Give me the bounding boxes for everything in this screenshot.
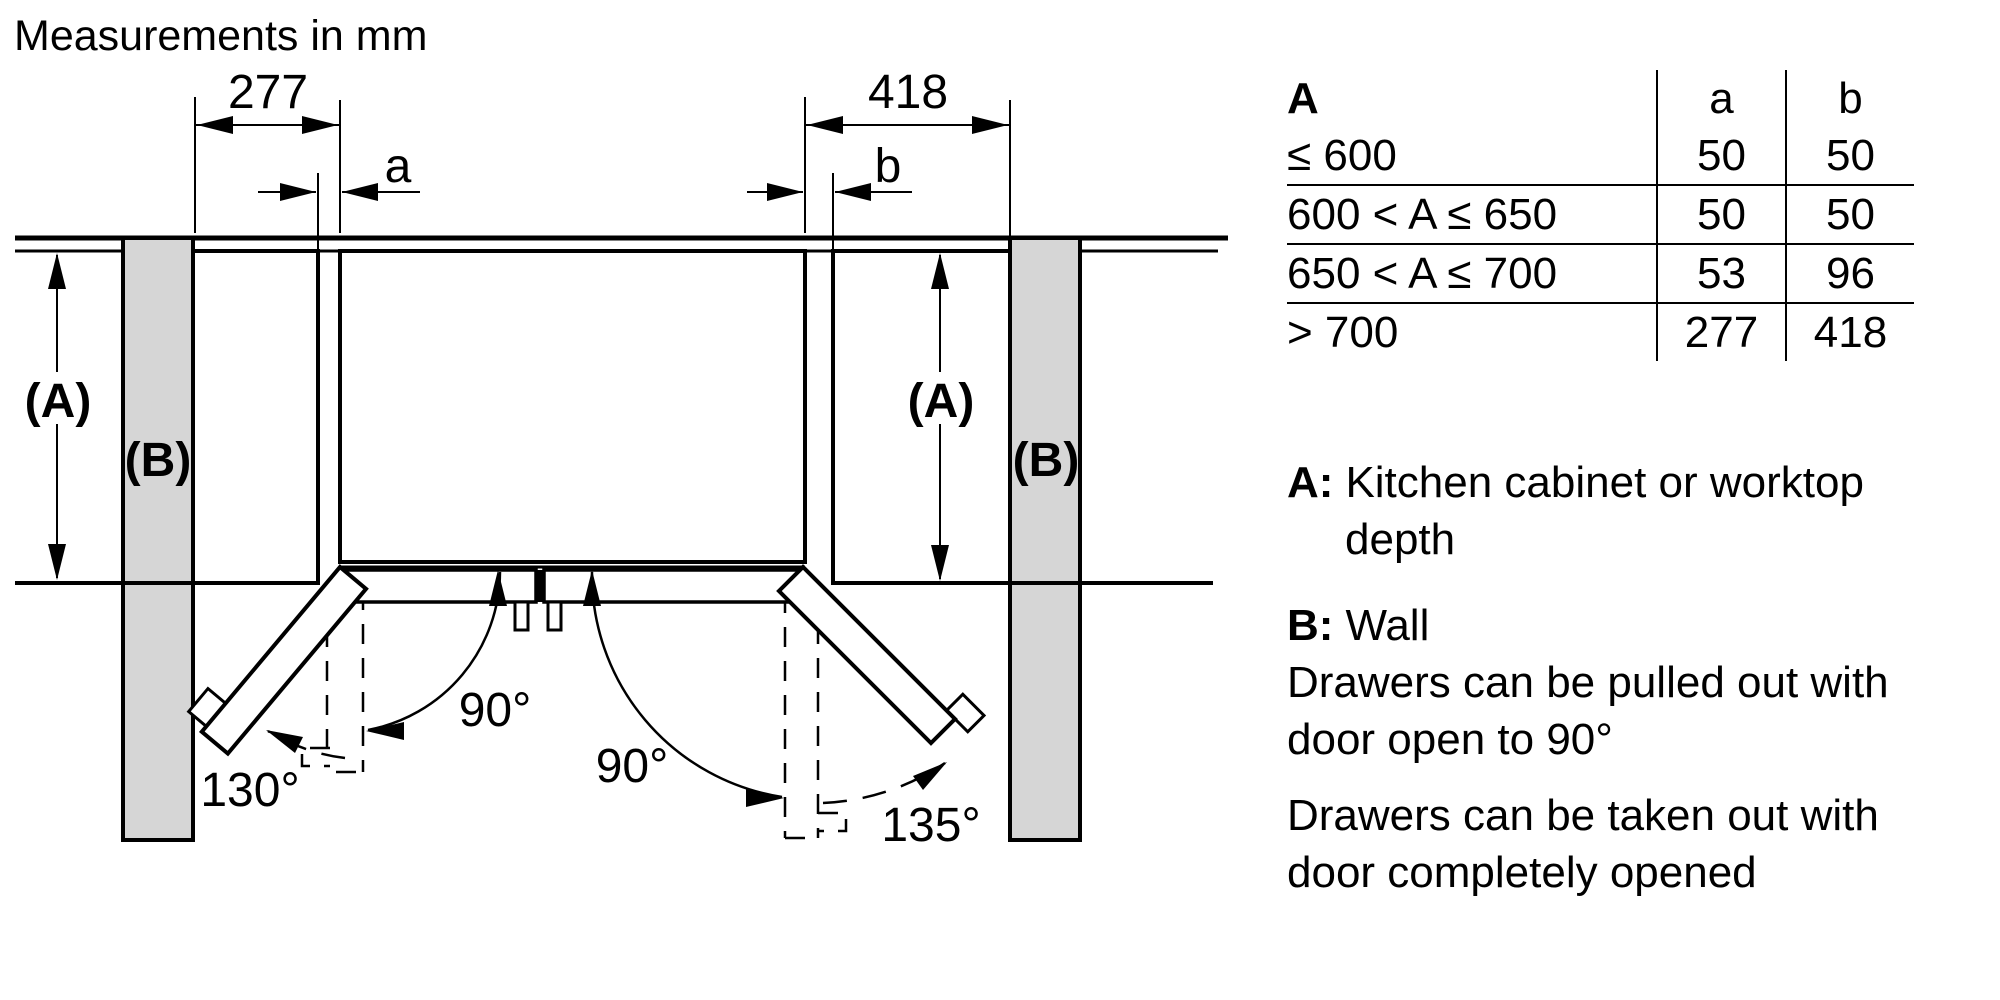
left-130-arc [266,730,345,758]
cell-b: 50 [1786,127,1914,185]
right-door-handle [947,694,984,731]
table-header-row: A a b [1287,70,1914,127]
legend-a-line2: depth [1287,511,1864,568]
arrowhead-right [280,183,316,201]
left-door [202,567,366,754]
angle-130-label: 130° [200,764,299,817]
dim-277-label: 277 [228,66,308,119]
legend-a: A:Kitchen cabinet or worktop depth [1287,454,1864,568]
cell-range: ≤ 600 [1287,127,1657,185]
cell-range: 650 < A ≤ 700 [1287,244,1657,303]
arrowhead-right [746,789,784,807]
depth-label-left: (A) [25,375,92,428]
legend-a-key: A: [1287,458,1333,507]
table-row: ≤ 600 50 50 [1287,127,1914,185]
arrowhead-right [767,183,803,201]
note1-line2: door open to 90° [1287,711,1889,768]
angle-90-left-label: 90° [459,684,532,737]
cell-range: > 700 [1287,303,1657,361]
cell-b: 96 [1786,244,1914,303]
appliance-body [340,251,805,562]
legend-a-text: Kitchen cabinet or worktop [1345,458,1864,507]
cell-a: 50 [1657,185,1786,244]
front-frame-right [544,570,803,602]
wall-label-left: (B) [125,434,192,487]
dim-418-label: 418 [868,66,948,119]
page-title: Measurements in mm [14,12,427,60]
angle-90-right-label: 90° [596,740,669,793]
cell-a: 53 [1657,244,1786,303]
note2-line1: Drawers can be taken out with [1287,787,1879,844]
wall-label-right: (B) [1013,434,1080,487]
right-135-arc [823,762,947,803]
header-a: a [1657,70,1786,127]
cell-a: 50 [1657,127,1786,185]
right-wall [1010,238,1080,840]
legend-b: B:Wall Drawers can be pulled out with do… [1287,597,1889,768]
installation-top-view-diagram: Measurements in mm [0,0,1280,1000]
header-depth-range: A [1287,70,1657,127]
arrowhead-right [972,116,1008,134]
legend-b-key: B: [1287,601,1333,650]
arrowhead-left [342,183,378,201]
cell-b: 418 [1786,303,1914,361]
cell-a: 277 [1657,303,1786,361]
legend-b-text: Wall [1345,601,1429,650]
center-stub-right [548,602,561,630]
arrowhead-up-right [913,762,947,790]
table-row: 650 < A ≤ 700 53 96 [1287,244,1914,303]
arrowhead-up-left [266,730,303,753]
table-row: > 700 277 418 [1287,303,1914,361]
arrowhead-down [48,544,66,580]
front-frame-left [342,570,536,602]
legend-note2: Drawers can be taken out with door compl… [1287,787,1879,901]
manual-page: { "title": "Measurements in mm", "diagra… [0,0,2000,1000]
legend-a-line1: A:Kitchen cabinet or worktop [1287,454,1864,511]
clearance-table: A a b ≤ 600 50 50 600 < A ≤ 650 50 50 65… [1287,70,1914,361]
left-cabinet [193,251,318,583]
left-wall [123,238,193,840]
center-mullion [536,570,544,602]
note1-line1: Drawers can be pulled out with [1287,654,1889,711]
header-b: b [1786,70,1914,127]
arrowhead-left [835,183,871,201]
angle-135-label: 135° [881,799,980,852]
arrowhead-left [807,116,843,134]
dim-b-label: b [875,140,902,193]
center-stub-left [515,602,528,630]
right-door [779,567,955,743]
depth-label-right: (A) [908,375,975,428]
cell-range: 600 < A ≤ 650 [1287,185,1657,244]
table-row: 600 < A ≤ 650 50 50 [1287,185,1914,244]
cell-b: 50 [1786,185,1914,244]
dim-a-label: a [385,140,412,193]
legend-b-line1: B:Wall [1287,597,1889,654]
note2-line2: door completely opened [1287,844,1879,901]
arrowhead-up [48,253,66,289]
